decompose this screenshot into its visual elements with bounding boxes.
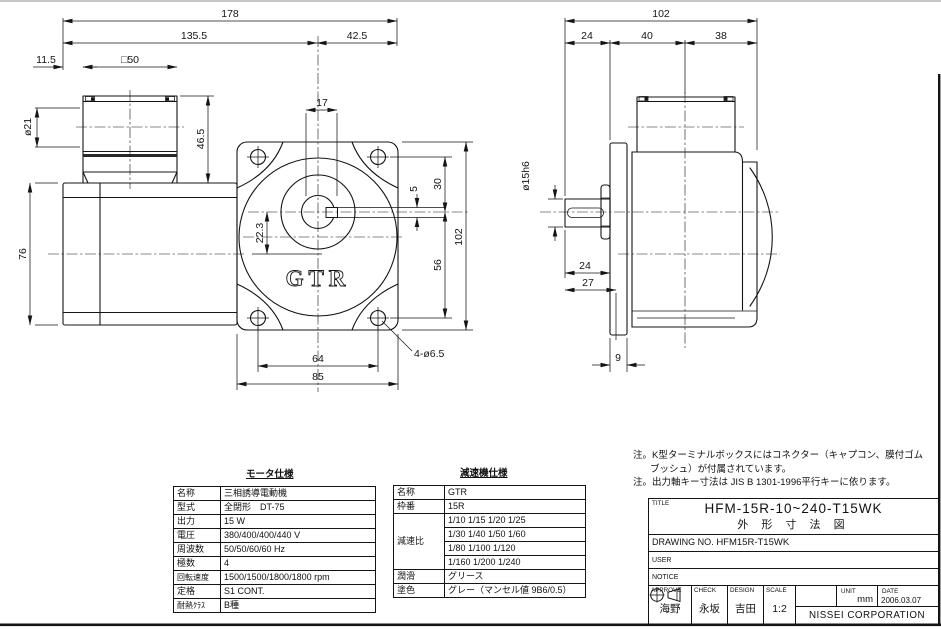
mount-flange — [610, 143, 627, 335]
table-row: 回転速度1500/1500/1800/1800 rpm — [174, 571, 376, 585]
dim-cable-dia: ø21 — [22, 118, 34, 136]
bolt-hole — [247, 146, 269, 168]
notice-label: NOTICE — [652, 574, 678, 581]
dim-box-height: 46.5 — [195, 129, 207, 150]
checker-name: 永坂 — [692, 594, 727, 624]
projection-symbol-cell — [796, 586, 836, 606]
designer-name: 吉田 — [728, 594, 763, 624]
note-line: 注。K型ターミナルボックスにはコネクター（キャプコン、膜付ゴム — [633, 449, 941, 463]
table-row: 電圧380/400/400/440 V — [174, 529, 376, 543]
dim-center-offset: 22.3 — [254, 223, 266, 244]
table-row: 周波数50/50/60/60 Hz — [174, 543, 376, 557]
third-angle-projection-icon — [649, 586, 687, 604]
company-name: NISSEI CORPORATION — [796, 606, 938, 624]
front-view-dimensions: 178 135.5 42.5 11.5 □50 ø21 46.5 76 — [17, 8, 473, 390]
reducer-spec-table: 名称GTR 枠番15R 減速比1/10 1/15 1/20 1/25 1/30 … — [393, 485, 586, 598]
note-line: ブッシュ）が付属されています。 — [633, 463, 941, 477]
table-row: 型式全閉形 DT-75 — [174, 501, 376, 515]
table-row: 減速比1/10 1/15 1/20 1/25 — [394, 514, 586, 528]
note-line: 注。出力軸キー寸法は JIS B 1301-1996平行キーに依ります。 — [633, 476, 941, 490]
drawing-title: HFM-15R-10~240-T15WK — [649, 501, 938, 516]
dim-box-offset: 11.5 — [36, 54, 56, 66]
table-row: 出力15 W — [174, 515, 376, 529]
check-cell: CHECK 永坂 — [692, 586, 728, 624]
reducer-table-title: 減速機仕様 — [460, 465, 508, 479]
table-row: 枠番15R — [394, 500, 586, 514]
table-row: 名称GTR — [394, 486, 586, 500]
right-area: UNIT mm DATE 2006.03.07 NISSEI CORPORATI… — [796, 586, 938, 624]
terminal-box-side — [637, 97, 735, 153]
front-view: GTR 178 135.5 42.5 11.5 □50 ø21 46.5 — [17, 8, 473, 392]
dim-key-width: 5 — [408, 186, 420, 192]
unit-cell: UNIT mm — [836, 586, 877, 606]
bolt-hole — [367, 146, 389, 168]
user-row: USER — [649, 551, 938, 568]
dim-shaft-length-top: 24 — [581, 30, 593, 42]
dim-overall-depth: 102 — [652, 8, 670, 20]
dim-flange-height: 102 — [453, 228, 465, 246]
dim-gearhead-length: 42.5 — [347, 30, 368, 42]
side-view-dimensions: 102 24 40 38 ø15h6 24 27 9 — [520, 8, 757, 372]
dim-box-width: □50 — [121, 54, 139, 66]
table-row: 極数4 — [174, 557, 376, 571]
date-value: 2006.03.07 — [881, 596, 921, 605]
drawing-no-row: DRAWING NO. HFM15R-T15WK — [649, 534, 938, 551]
dim-mount-holes: 4-ø6.5 — [414, 348, 445, 360]
date-cell: DATE 2006.03.07 — [877, 586, 938, 606]
table-row: 耐熱ｸﾗｽB種 — [174, 599, 376, 613]
scale-value: 1:2 — [764, 594, 795, 624]
drawing-subtitle: 外 形 寸 法 図 — [649, 516, 938, 532]
motor-spec-table: 名称三相誘導電動機 型式全閉形 DT-75 出力15 W 電圧380/400/4… — [173, 486, 376, 613]
drawing-no-label: DRAWING NO. — [652, 537, 714, 547]
dim-motor-height: 76 — [17, 248, 29, 260]
table-row: 潤滑グリース — [394, 570, 586, 584]
dim-motor-side-length: 135.5 — [181, 30, 207, 42]
side-view: 102 24 40 38 ø15h6 24 27 9 — [520, 8, 780, 372]
user-label: USER — [652, 557, 671, 564]
motor-table-title: モータ仕様 — [246, 466, 294, 480]
scale-cell: SCALE 1:2 — [764, 586, 796, 624]
dim-motor-depth: 38 — [715, 30, 727, 42]
drawing-sheet: GTR 178 135.5 42.5 11.5 □50 ø21 46.5 — [0, 0, 941, 629]
design-cell: DESIGN 吉田 — [728, 586, 764, 624]
drawing-no: HFM15R-T15WK — [716, 537, 789, 548]
gtr-logo: GTR — [286, 266, 351, 291]
dim-bolt-pitch: 64 — [312, 353, 324, 365]
bolt-hole — [247, 307, 269, 329]
dim-boss-width: 17 — [316, 97, 328, 109]
dim-flange-thickness: 9 — [615, 352, 621, 364]
dim-flange-width: 85 — [312, 371, 324, 383]
table-row: 塗色グレー（マンセル値 9B6/0.5） — [394, 584, 586, 598]
dim-overall-length: 178 — [221, 8, 239, 20]
title-label: TITLE — [652, 500, 669, 507]
dim-shaft-length: 24 — [579, 260, 591, 272]
terminal-box — [76, 90, 184, 189]
approval-row: APPROVE 海野 CHECK 永坂 DESIGN 吉田 SCALE 1:2 — [649, 585, 938, 624]
motor-silhouette — [750, 168, 772, 306]
title-block: TITLE HFM-15R-10~240-T15WK 外 形 寸 法 図 DRA… — [648, 498, 939, 625]
gearhead-flange: GTR — [237, 36, 470, 392]
table-row: 定格S1 CONT. — [174, 585, 376, 599]
notice-row: NOTICE — [649, 568, 938, 585]
dim-shaft-to-top: 30 — [432, 178, 444, 190]
unit-value: mm — [857, 594, 873, 605]
title-row: TITLE HFM-15R-10~240-T15WK 外 形 寸 法 図 — [649, 499, 938, 534]
dim-shaft-to-bottom: 56 — [432, 259, 444, 271]
bolt-hole — [367, 307, 389, 329]
table-row: 名称三相誘導電動機 — [174, 487, 376, 501]
notes: 注。K型ターミナルボックスにはコネクター（キャプコン、膜付ゴム ブッシュ）が付属… — [633, 449, 941, 490]
dim-shaft-dia: ø15h6 — [520, 161, 532, 191]
dim-gear-depth: 40 — [641, 30, 653, 42]
dim-register-depth: 27 — [582, 277, 594, 289]
